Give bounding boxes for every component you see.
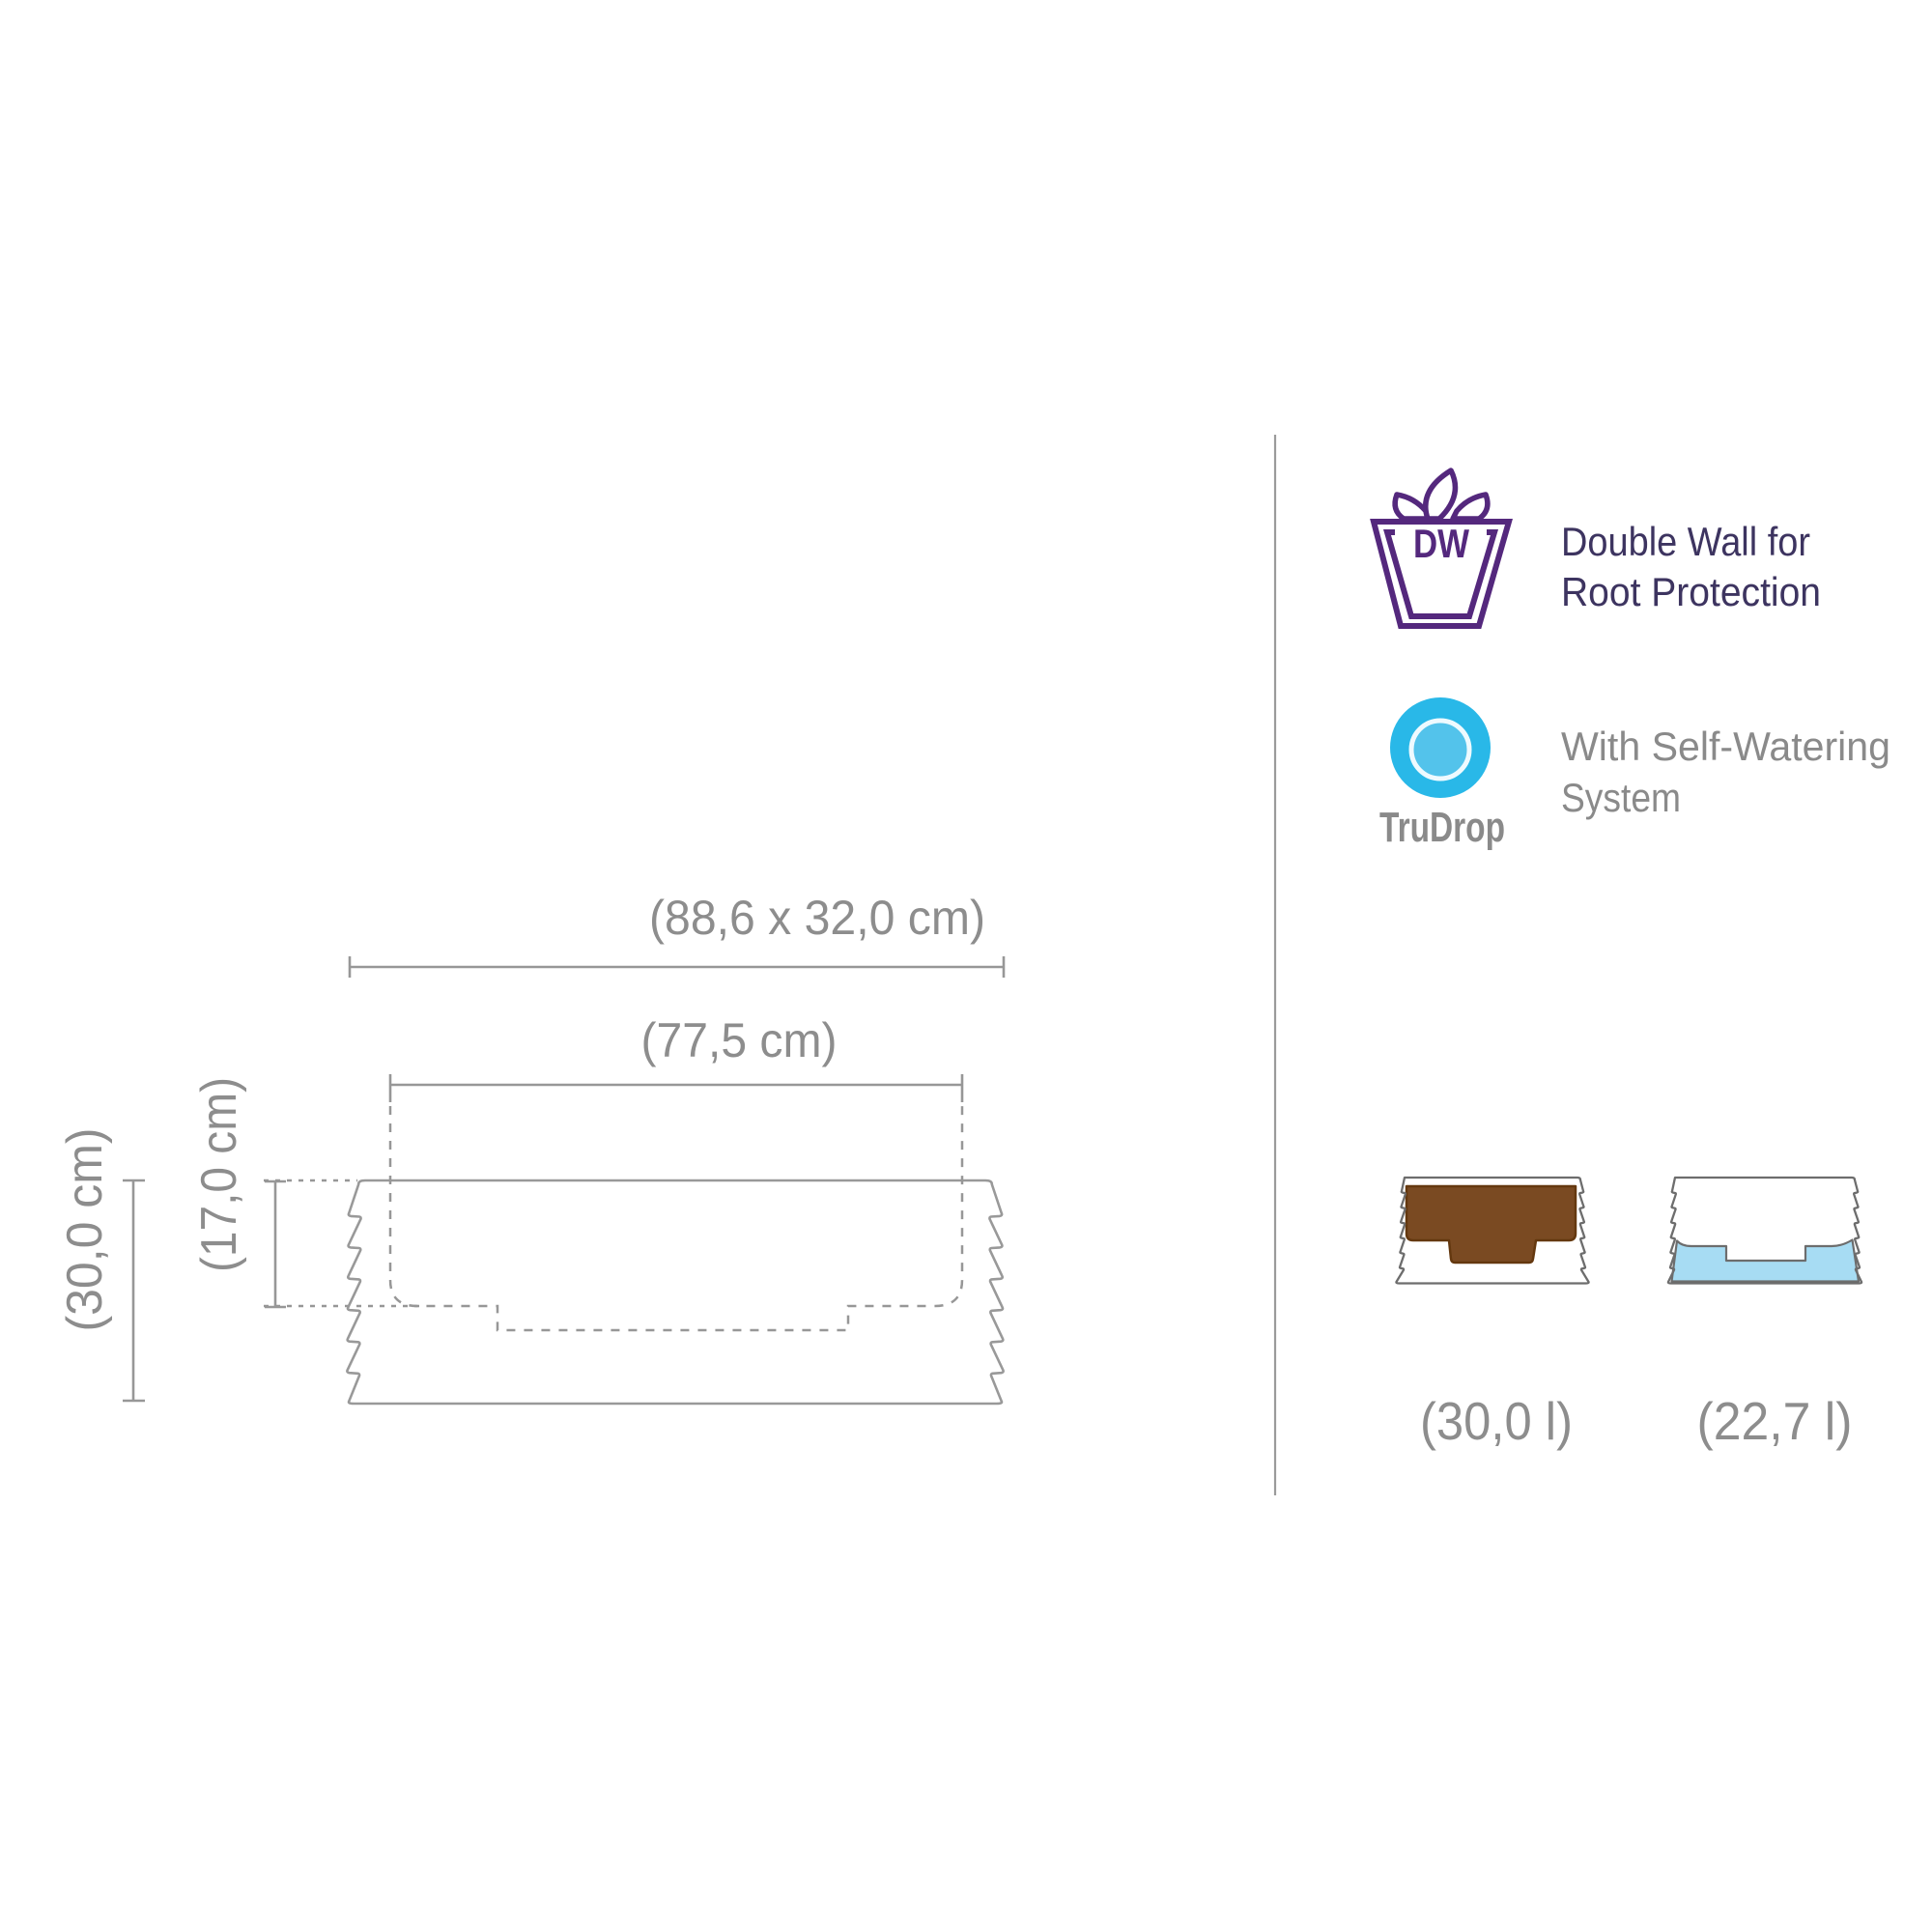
- svg-text:Root Protection: Root Protection: [1561, 569, 1821, 614]
- svg-text:(30,0 l): (30,0 l): [1420, 1391, 1573, 1451]
- svg-text:(30,0 cm): (30,0 cm): [57, 1128, 113, 1332]
- svg-text:DW: DW: [1413, 521, 1469, 566]
- svg-text:(17,0 cm): (17,0 cm): [191, 1077, 247, 1272]
- svg-text:(88,6 x 32,0 cm): (88,6 x 32,0 cm): [649, 891, 985, 945]
- svg-text:(77,5 cm): (77,5 cm): [641, 1013, 838, 1067]
- svg-text:(22,7 l): (22,7 l): [1697, 1391, 1853, 1451]
- svg-text:System: System: [1561, 775, 1681, 820]
- svg-text:Double Wall for: Double Wall for: [1561, 519, 1810, 564]
- svg-text:TruDrop: TruDrop: [1379, 804, 1505, 851]
- svg-text:With Self-Watering: With Self-Watering: [1561, 724, 1890, 769]
